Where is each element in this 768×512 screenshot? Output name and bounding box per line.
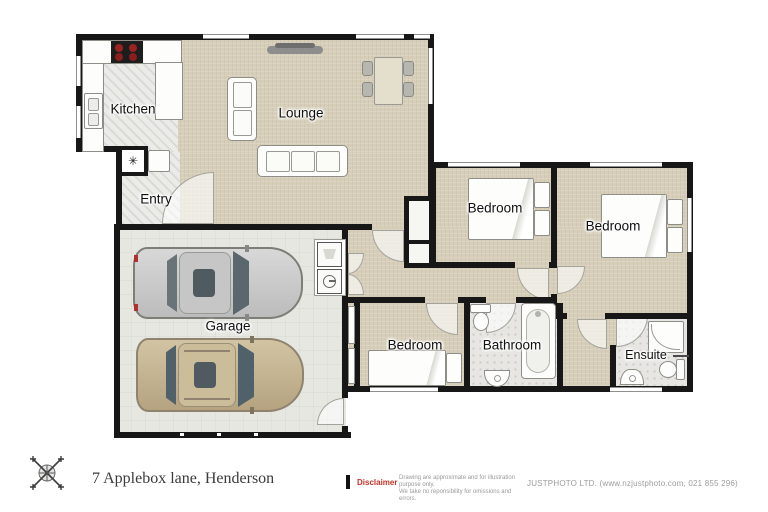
room-label-ensuite: Ensuite <box>625 348 667 362</box>
bed-single <box>368 350 446 386</box>
wall <box>551 168 557 268</box>
wall <box>342 390 348 398</box>
dining-chair <box>362 61 373 76</box>
wall <box>342 426 348 438</box>
dining-chair <box>362 82 373 97</box>
window <box>428 48 433 104</box>
laundry-tub-icon <box>317 242 342 267</box>
window <box>370 387 438 392</box>
room-label-garage: Garage <box>205 319 250 334</box>
window <box>414 34 430 39</box>
window <box>76 56 81 86</box>
wall <box>114 224 120 438</box>
wall <box>114 432 351 438</box>
pillow <box>534 210 550 236</box>
room-label-bathroom: Bathroom <box>483 338 542 353</box>
toilet-icon <box>676 359 685 380</box>
sofa-three-seat <box>257 145 348 177</box>
room-label-bedroom-master: Bedroom <box>586 219 641 234</box>
pillow <box>446 353 462 383</box>
car-tan <box>136 338 304 412</box>
lounge-wardrobe <box>404 196 434 268</box>
floorplan-page: ✳ <box>0 0 768 512</box>
room-label-entry: Entry <box>140 192 172 207</box>
hall-sliding-cupboard <box>348 348 355 384</box>
wall <box>430 262 515 268</box>
toilet-icon <box>473 312 489 331</box>
hall-sliding-cupboard <box>348 306 355 344</box>
toilet-icon <box>659 361 677 378</box>
stove-icon <box>111 41 143 63</box>
entry-cabinet <box>148 150 170 172</box>
pillow <box>534 182 550 208</box>
garage-door-tick <box>254 433 258 436</box>
garage-door-tick <box>180 433 184 436</box>
window <box>356 34 404 39</box>
room-label-lounge: Lounge <box>278 106 323 121</box>
garage-door-tick <box>217 433 221 436</box>
window <box>76 106 81 138</box>
window <box>687 198 692 252</box>
window <box>448 162 520 167</box>
sofa-two-seat <box>227 77 257 141</box>
room-label-kitchen: Kitchen <box>110 102 155 117</box>
wall <box>557 303 563 386</box>
wardrobe-divider <box>408 240 430 244</box>
room-label-bedroom-third: Bedroom <box>388 338 443 353</box>
sink-icon <box>620 369 644 385</box>
wall <box>610 313 616 319</box>
wall <box>610 345 616 386</box>
dining-table <box>374 57 403 105</box>
wall <box>687 162 693 392</box>
disclaimer-line1: Drawing are approximate and for illustra… <box>399 475 529 489</box>
washing-machine-icon <box>317 269 342 294</box>
car-silver <box>133 247 303 319</box>
disclaimer-line2: We take no reponsibility for omissions a… <box>399 489 529 503</box>
company-credit: JUSTPHOTO LTD. (www.nzjustphoto.com, 021… <box>527 479 738 488</box>
room-label-bedroom-mid: Bedroom <box>468 201 523 216</box>
kitchen-sink-icon <box>84 93 103 129</box>
hot-water-cupboard: ✳ <box>118 146 148 176</box>
dining-chair <box>403 61 414 76</box>
wall <box>114 224 372 230</box>
window <box>590 162 662 167</box>
pillow <box>667 227 683 253</box>
window <box>610 387 662 392</box>
wall <box>605 313 693 319</box>
disclaimer-text: Drawing are approximate and for illustra… <box>399 475 529 503</box>
dining-chair <box>403 82 414 97</box>
laundry-nook <box>314 239 346 296</box>
disclaimer-bar <box>346 475 350 489</box>
disclaimer-label: Disclaimer <box>357 478 397 487</box>
address-text: 7 Applebox lane, Henderson <box>92 470 274 488</box>
tv-icon <box>275 43 315 48</box>
hot-water-symbol: ✳ <box>128 154 138 168</box>
kitchen-bench <box>155 62 183 120</box>
pillow <box>667 199 683 225</box>
ensuite-leader-line <box>673 355 689 357</box>
compass-icon <box>24 450 70 496</box>
wall <box>458 297 486 303</box>
window <box>203 34 249 39</box>
wall <box>464 303 470 386</box>
